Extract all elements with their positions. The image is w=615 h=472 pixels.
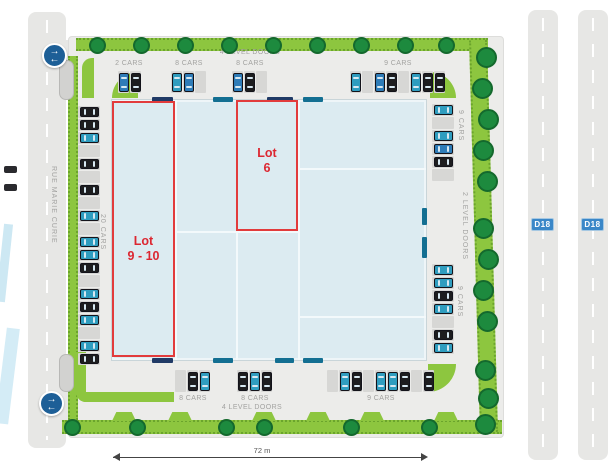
- entrance-ramp-bottom: [59, 354, 74, 392]
- lot-9-10-label-line1: Lot: [112, 234, 175, 249]
- parking-group-label: 9 CARS: [346, 395, 416, 402]
- parking-stall: [398, 71, 409, 93]
- parking-stall: [78, 327, 100, 339]
- car-icon: [352, 372, 362, 391]
- car-icon: [423, 73, 433, 92]
- parking-stall: [78, 210, 100, 222]
- parking-stall: [432, 156, 454, 168]
- lot-6-label: Lot 6: [236, 146, 298, 176]
- car-icon: [4, 184, 17, 191]
- tree-icon: [438, 37, 455, 54]
- doors-label-right: 2 LEVEL DOORS: [461, 192, 468, 260]
- road-center-line: [46, 20, 48, 440]
- parking-stall: [78, 249, 100, 261]
- parking-group-label: 8 CARS: [158, 395, 228, 402]
- parking-stall: [362, 71, 373, 93]
- parking-stall: [237, 370, 248, 392]
- arrow-left-icon: ←: [50, 56, 60, 64]
- tree-icon: [129, 419, 146, 436]
- car-icon: [400, 372, 410, 391]
- parking-stall: [78, 275, 100, 287]
- loading-door-marker: [422, 208, 427, 225]
- car-icon: [434, 304, 453, 314]
- parking-stall: [256, 71, 267, 93]
- parking-stall: [249, 370, 260, 392]
- parking-stall: [386, 71, 397, 93]
- parking-stall: [432, 303, 454, 315]
- loading-door-marker: [303, 358, 323, 363]
- parking-stall: [374, 71, 385, 93]
- road-center-line: [592, 18, 594, 452]
- dimension-label: 72 m: [232, 446, 292, 455]
- parking-group-label: 8 CARS: [154, 60, 224, 67]
- doors-label-top: 4 LEVEL DOORS: [205, 49, 295, 56]
- car-icon: [434, 343, 453, 353]
- car-icon: [80, 250, 99, 260]
- tree-icon: [256, 419, 273, 436]
- tree-icon: [89, 37, 106, 54]
- parking-stall: [118, 71, 129, 93]
- tree-icon: [265, 37, 282, 54]
- car-icon: [233, 73, 243, 92]
- parking-stall: [422, 71, 433, 93]
- car-icon: [80, 107, 99, 117]
- tree-icon: [221, 37, 238, 54]
- parking-stall: [432, 290, 454, 302]
- lot-6-label-line1: Lot: [236, 146, 298, 161]
- site-plan-canvas: RUE MARIE CURIE →← →← 4 LEVEL DOORS 2 CA…: [0, 0, 615, 472]
- parking-stall: [78, 353, 100, 365]
- tree-icon: [472, 78, 493, 99]
- car-icon: [435, 73, 445, 92]
- lot-9-10-label-line2: 9 - 10: [112, 249, 175, 264]
- parking-stall: [363, 370, 374, 392]
- parking-group-label: 9 CARS: [456, 286, 463, 317]
- parking-stall: [187, 370, 198, 392]
- car-icon: [4, 166, 17, 173]
- dimension-line: [113, 457, 425, 458]
- parking-stall: [199, 370, 210, 392]
- parking-group-label: 9 CARS: [363, 60, 433, 67]
- parking-stall: [432, 130, 454, 142]
- parking-stall: [78, 301, 100, 313]
- car-icon: [434, 105, 453, 115]
- car-icon: [376, 372, 386, 391]
- parking-stall: [195, 71, 206, 93]
- lot-9-10-label: Lot 9 - 10: [112, 234, 175, 264]
- parking-stall: [171, 71, 182, 93]
- parking-stall: [434, 71, 445, 93]
- loading-door-marker: [213, 97, 233, 102]
- tree-icon: [343, 419, 360, 436]
- unit-divider: [299, 316, 426, 318]
- road-center-line: [542, 18, 544, 452]
- parking-stall: [432, 277, 454, 289]
- parking-stall: [78, 158, 100, 170]
- car-icon: [119, 73, 129, 92]
- car-icon: [375, 73, 385, 92]
- parking-stall: [432, 117, 454, 129]
- parking-stall: [399, 370, 410, 392]
- parking-stall: [78, 132, 100, 144]
- parking-stall: [410, 71, 421, 93]
- car-icon: [80, 354, 99, 364]
- loading-door-marker: [422, 237, 427, 258]
- tree-icon: [478, 109, 499, 130]
- car-icon: [80, 120, 99, 130]
- parking-stall: [351, 370, 362, 392]
- car-icon: [411, 73, 421, 92]
- tree-icon: [473, 218, 494, 239]
- car-icon: [351, 73, 361, 92]
- parking-group-label: 20 CARS: [99, 214, 106, 250]
- parking-stall: [432, 329, 454, 341]
- adjacent-building-sliver: [0, 224, 13, 303]
- car-icon: [80, 211, 99, 221]
- parking-stall: [78, 145, 100, 157]
- parking-stall: [78, 184, 100, 196]
- parking-stall: [432, 342, 454, 354]
- route-badge-d18: D18: [581, 218, 604, 231]
- parking-group-label: 8 CARS: [220, 395, 290, 402]
- parking-stall: [432, 316, 454, 328]
- loading-door-marker: [152, 358, 173, 363]
- adjacent-building-sliver: [0, 328, 20, 425]
- parking-stall: [432, 264, 454, 276]
- parking-stall: [411, 370, 422, 392]
- route-badge-d18: D18: [531, 218, 554, 231]
- parking-stall: [339, 370, 350, 392]
- parking-stall: [432, 104, 454, 116]
- car-icon: [80, 263, 99, 273]
- doors-label-bottom: 4 LEVEL DOORS: [207, 404, 297, 411]
- dimension-arrow-right: [421, 453, 432, 461]
- car-icon: [434, 131, 453, 141]
- car-icon: [80, 302, 99, 312]
- parking-stall: [244, 71, 255, 93]
- tree-icon: [218, 419, 235, 436]
- tree-icon: [475, 414, 496, 435]
- tree-icon: [421, 419, 438, 436]
- parking-stall: [423, 370, 434, 392]
- parking-stall: [387, 370, 398, 392]
- parking-stall: [78, 288, 100, 300]
- tree-icon: [133, 37, 150, 54]
- parking-stall: [78, 223, 100, 235]
- tree-icon: [473, 280, 494, 301]
- tree-icon: [353, 37, 370, 54]
- tree-icon: [177, 37, 194, 54]
- car-icon: [184, 73, 194, 92]
- car-icon: [245, 73, 255, 92]
- car-icon: [80, 237, 99, 247]
- parking-stall: [432, 169, 454, 181]
- parking-stall: [130, 71, 141, 93]
- car-icon: [80, 159, 99, 169]
- car-icon: [131, 73, 141, 92]
- car-icon: [434, 278, 453, 288]
- parking-stall: [78, 314, 100, 326]
- car-icon: [172, 73, 182, 92]
- parking-group-label: 8 CARS: [215, 60, 285, 67]
- parking-stall: [375, 370, 386, 392]
- parking-stall: [327, 370, 338, 392]
- car-icon: [262, 372, 272, 391]
- car-icon: [434, 157, 453, 167]
- parking-stall: [350, 71, 361, 93]
- car-icon: [387, 73, 397, 92]
- parking-stall: [432, 143, 454, 155]
- car-icon: [80, 185, 99, 195]
- car-icon: [80, 341, 99, 351]
- unit-divider: [176, 231, 299, 233]
- tree-icon: [476, 47, 497, 68]
- street-name-left: RUE MARIE CURIE: [50, 166, 57, 244]
- parking-stall: [78, 171, 100, 183]
- car-icon: [80, 289, 99, 299]
- loading-door-marker: [303, 97, 323, 102]
- tree-icon: [477, 171, 498, 192]
- landscape-curb: [82, 58, 94, 98]
- car-icon: [434, 265, 453, 275]
- car-icon: [388, 372, 398, 391]
- tree-icon: [64, 419, 81, 436]
- car-icon: [434, 144, 453, 154]
- parking-stall: [78, 119, 100, 131]
- parking-stall: [183, 71, 194, 93]
- car-icon: [238, 372, 248, 391]
- car-icon: [424, 372, 434, 391]
- tree-icon: [397, 37, 414, 54]
- unit-divider: [175, 100, 177, 360]
- car-icon: [80, 315, 99, 325]
- unit-divider: [299, 168, 426, 170]
- tree-icon: [478, 388, 499, 409]
- loading-door-marker: [275, 358, 294, 363]
- arrow-left-icon: ←: [47, 404, 57, 412]
- parking-stall: [78, 262, 100, 274]
- car-icon: [250, 372, 260, 391]
- tree-icon: [478, 249, 499, 270]
- parking-group-label: 9 CARS: [457, 110, 464, 141]
- tree-icon: [475, 360, 496, 381]
- car-icon: [434, 330, 453, 340]
- parking-stall: [78, 106, 100, 118]
- unit-divider: [298, 100, 300, 360]
- car-icon: [188, 372, 198, 391]
- loading-door-marker: [213, 358, 233, 363]
- parking-stall: [78, 197, 100, 209]
- parking-stall: [78, 236, 100, 248]
- car-icon: [340, 372, 350, 391]
- two-way-traffic-icon: →←: [39, 391, 64, 416]
- tree-icon: [477, 311, 498, 332]
- tree-icon: [473, 140, 494, 161]
- tree-icon: [309, 37, 326, 54]
- car-icon: [80, 133, 99, 143]
- parking-stall: [232, 71, 243, 93]
- parking-stall: [175, 370, 186, 392]
- lot-6-label-line2: 6: [236, 161, 298, 176]
- dimension-arrow-left: [109, 453, 120, 461]
- two-way-traffic-icon: →←: [42, 43, 67, 68]
- parking-stall: [78, 340, 100, 352]
- car-icon: [434, 291, 453, 301]
- lot-9-10-outline: [112, 101, 175, 357]
- parking-stall: [261, 370, 272, 392]
- car-icon: [200, 372, 210, 391]
